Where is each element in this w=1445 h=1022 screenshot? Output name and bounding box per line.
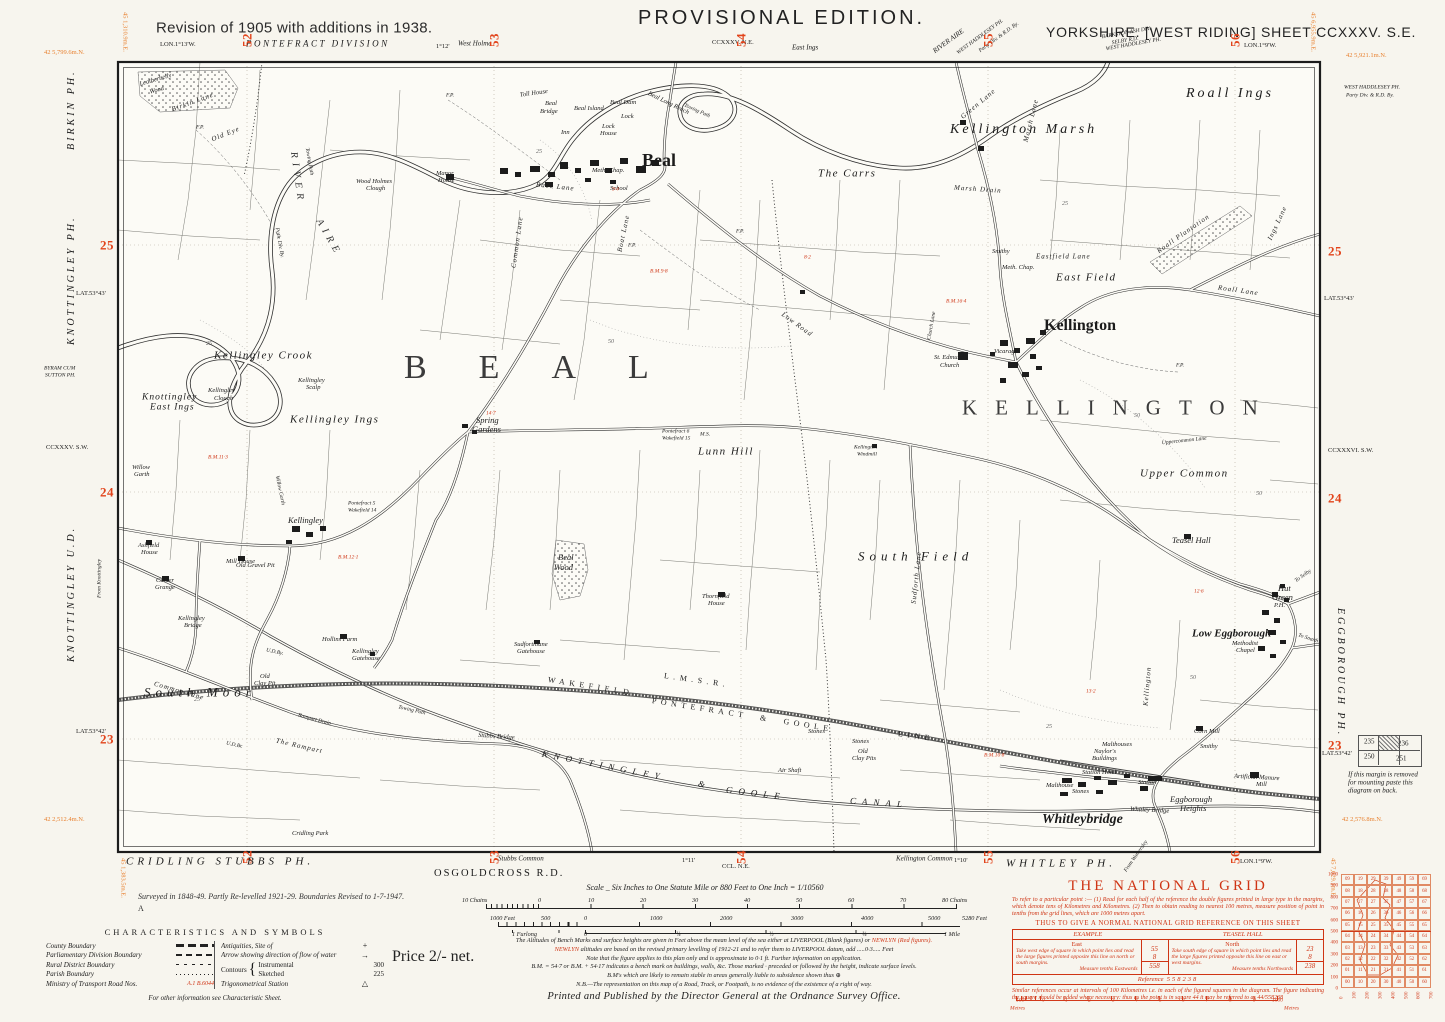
gb-grid-cell: 34 — [1380, 931, 1393, 942]
gb-grid-cell: 69 — [1418, 874, 1431, 885]
note-line: B.M's which are likely to remain stable … — [428, 972, 1020, 981]
gb-grid-cell: 50 — [1405, 977, 1418, 988]
gb-grid-cell: 56 — [1405, 908, 1418, 919]
map-paper — [118, 62, 1320, 852]
gb-grid-cell: 19 — [1354, 874, 1367, 885]
gb-grid-cell: 57 — [1405, 897, 1418, 908]
parish-boundary-sample — [176, 974, 214, 975]
national-grid-title: THE NATIONAL GRID — [1012, 878, 1324, 895]
gb-grid-cell: 02 — [1341, 954, 1354, 965]
gb-grid-cell: 49 — [1392, 874, 1405, 885]
gb-grid-cell: 61 — [1418, 965, 1431, 976]
publisher-imprint: Printed and Published by the Director Ge… — [428, 993, 1020, 1002]
gb-grid-cell: 67 — [1418, 897, 1431, 908]
legend-row: Parliamentary Division Boundary — [46, 951, 214, 961]
parliamentary-boundary-sample — [176, 954, 214, 956]
national-grid-panel: THE NATIONAL GRID To refer to a particul… — [1012, 878, 1324, 1002]
scale-caption: Scale _ Six Inches to One Statute Mile o… — [470, 883, 940, 892]
chains-scale-bar — [486, 904, 957, 909]
gb-grid-cell: 32 — [1380, 954, 1393, 965]
gb-grid-cell: 37 — [1380, 897, 1393, 908]
legend-row: Antiquities, Site of+ — [221, 941, 384, 951]
gb-grid-cell: 28 — [1367, 885, 1380, 896]
gb-grid-cell: 62 — [1418, 954, 1431, 965]
gb-grid-cell: 22 — [1367, 954, 1380, 965]
note-line: B.M. = 54·7 or B.M. + 54·17 indicates a … — [428, 963, 1020, 972]
gb-grid-cell: 65 — [1418, 920, 1431, 931]
gb-grid-cell: 68 — [1418, 885, 1431, 896]
sheet-diagram-line — [1358, 750, 1420, 751]
survey-note-a: A — [138, 904, 404, 913]
gb-grid-cell: 05 — [1341, 920, 1354, 931]
survey-note: Surveyed in 1848-49. Partly Re-levelled … — [138, 892, 404, 913]
gb-grid-cell: 23 — [1367, 942, 1380, 953]
gb-grid-cell: 44 — [1392, 931, 1405, 942]
furlong-scale-bar-subdivision — [512, 930, 585, 933]
legend-row: County Boundary — [46, 941, 214, 951]
furlong-scale-bar — [585, 930, 946, 934]
feet-scale-bar-subdivision — [498, 922, 585, 926]
legend-row: Parish Boundary — [46, 970, 214, 980]
gb-grid-cell: 01 — [1341, 965, 1354, 976]
gb-grid-cell: 07 — [1341, 897, 1354, 908]
legend-row: Rural District Boundary — [46, 960, 214, 970]
gb-grid-cell: 24 — [1367, 931, 1380, 942]
note-line: Note that the figure applies to this pla… — [428, 955, 1020, 964]
gb-grid-cell: 53 — [1405, 942, 1418, 953]
gb-grid-cell: 08 — [1341, 885, 1354, 896]
note-line: The Altitudes of Bench Marks and surface… — [428, 937, 1020, 946]
gb-grid-cell: 03 — [1341, 942, 1354, 953]
gb-grid-cell: 20 — [1367, 977, 1380, 988]
gb-grid-cell: 40 — [1392, 977, 1405, 988]
gb-grid-cell: 55 — [1405, 920, 1418, 931]
gb-grid-cell: 18 — [1354, 885, 1367, 896]
gb-grid-cell: 04 — [1341, 931, 1354, 942]
rural-district-boundary-sample — [176, 964, 214, 965]
gb-grid-cell: 64 — [1418, 931, 1431, 942]
note-line: N.B.—The representation on this map of a… — [428, 981, 1020, 990]
characteristics-legend: CHARACTERISTICS AND SYMBOLS County Bound… — [46, 927, 384, 1002]
gb-grid-cell: 35 — [1380, 920, 1393, 931]
legend-row: Trigonometrical Station△ — [221, 979, 384, 989]
characteristics-footer: For other information see Characteristic… — [46, 994, 384, 1002]
gb-grid-cell: 12 — [1354, 954, 1367, 965]
current-sheet-highlight — [1379, 736, 1399, 750]
gb-grid-cell: 11 — [1354, 965, 1367, 976]
gb-grid-cell: 60 — [1418, 977, 1431, 988]
gb-grid-cell: 27 — [1367, 897, 1380, 908]
gb-grid-cell: 63 — [1418, 942, 1431, 953]
gb-grid-cell: 31 — [1380, 965, 1393, 976]
gb-grid-cell: 58 — [1405, 885, 1418, 896]
map-linework — [0, 0, 1445, 1022]
gb-grid-cell: 41 — [1392, 965, 1405, 976]
gb-grid-cell: 17 — [1354, 897, 1367, 908]
east-cell: East Take west edge of square in which p… — [1013, 940, 1142, 974]
gb-grid-cell: 06 — [1341, 908, 1354, 919]
gb-grid-cell: 59 — [1405, 874, 1418, 885]
gb-grid-cell: 29 — [1367, 874, 1380, 885]
survey-note-text: Surveyed in 1848-49. Partly Re-levelled … — [138, 892, 404, 901]
gb-grid-cell: 00 — [1341, 977, 1354, 988]
flow-arrow-icon: → — [346, 951, 384, 960]
gb-grid-cell: 14 — [1354, 931, 1367, 942]
gb-grid-cell: 33 — [1380, 942, 1393, 953]
gb-grid-cell: 45 — [1392, 920, 1405, 931]
national-grid-instructions: To refer to a particular point :— (1) Re… — [1012, 897, 1324, 918]
gb-grid-cell: 15 — [1354, 920, 1367, 931]
national-grid-example-table: EXAMPLETEASEL HALL East Take west edge o… — [1012, 929, 1324, 985]
gb-grid-cell: 13 — [1354, 942, 1367, 953]
gb-grid-cell: 39 — [1380, 874, 1393, 885]
brace-icon: { — [249, 961, 257, 979]
gb-grid-cell: 09 — [1341, 874, 1354, 885]
gb-grid-cell: 54 — [1405, 931, 1418, 942]
gb-grid-cell: 16 — [1354, 908, 1367, 919]
gb-grid-cell: 51 — [1405, 965, 1418, 976]
os-map-sheet: { "margin_labels": [ {"t":"Revision of 1… — [0, 0, 1445, 1022]
gb-grid-500-line — [1341, 931, 1431, 932]
gb-grid-cell: 66 — [1418, 908, 1431, 919]
gb-grid-cell: 21 — [1367, 965, 1380, 976]
chains-scale-bar-subdivision — [486, 904, 538, 908]
legend-row: Ministry of Transport Road Nos.A.1 B.604… — [46, 979, 214, 989]
note-line: NEWLYN altitudes are based on the revise… — [428, 946, 1020, 955]
gb-grid-cell: 25 — [1367, 920, 1380, 931]
gb-grid-cell: 46 — [1392, 908, 1405, 919]
metres-scale-bar-subdivision — [1016, 996, 1040, 1001]
north-values: 23 8 238 — [1297, 940, 1323, 974]
legend-row-contours: Contours { Instrumental300 Sketched225 — [221, 960, 384, 979]
east-values: 55 8 558 — [1142, 940, 1169, 974]
gb-grid-cell: 48 — [1392, 885, 1405, 896]
county-boundary-sample — [176, 944, 214, 947]
gb-grid-cell: 30 — [1380, 977, 1393, 988]
gb-grid-cell: 36 — [1380, 908, 1393, 919]
antiquities-cross-icon: + — [346, 941, 384, 950]
gb-grid-cell: 38 — [1380, 885, 1393, 896]
characteristics-title: CHARACTERISTICS AND SYMBOLS — [46, 927, 384, 937]
gb-grid-cell: 10 — [1354, 977, 1367, 988]
gb-grid-cell: 52 — [1405, 954, 1418, 965]
north-cell: North Take south edge of square in which… — [1169, 940, 1298, 974]
marginal-notes: The Altitudes of Bench Marks and surface… — [428, 937, 1020, 1002]
gb-grid-cell: 42 — [1392, 954, 1405, 965]
legend-row: Arrow showing direction of flow of water… — [221, 951, 384, 961]
trig-station-icon: △ — [346, 979, 384, 988]
metres-scale-bar — [1040, 996, 1278, 1001]
gb-grid-cell: 47 — [1392, 897, 1405, 908]
mot-road-numbers-sample: A.1 B.6044 — [176, 981, 214, 987]
gb-grid-cell: 26 — [1367, 908, 1380, 919]
gb-grid-cell: 43 — [1392, 942, 1405, 953]
